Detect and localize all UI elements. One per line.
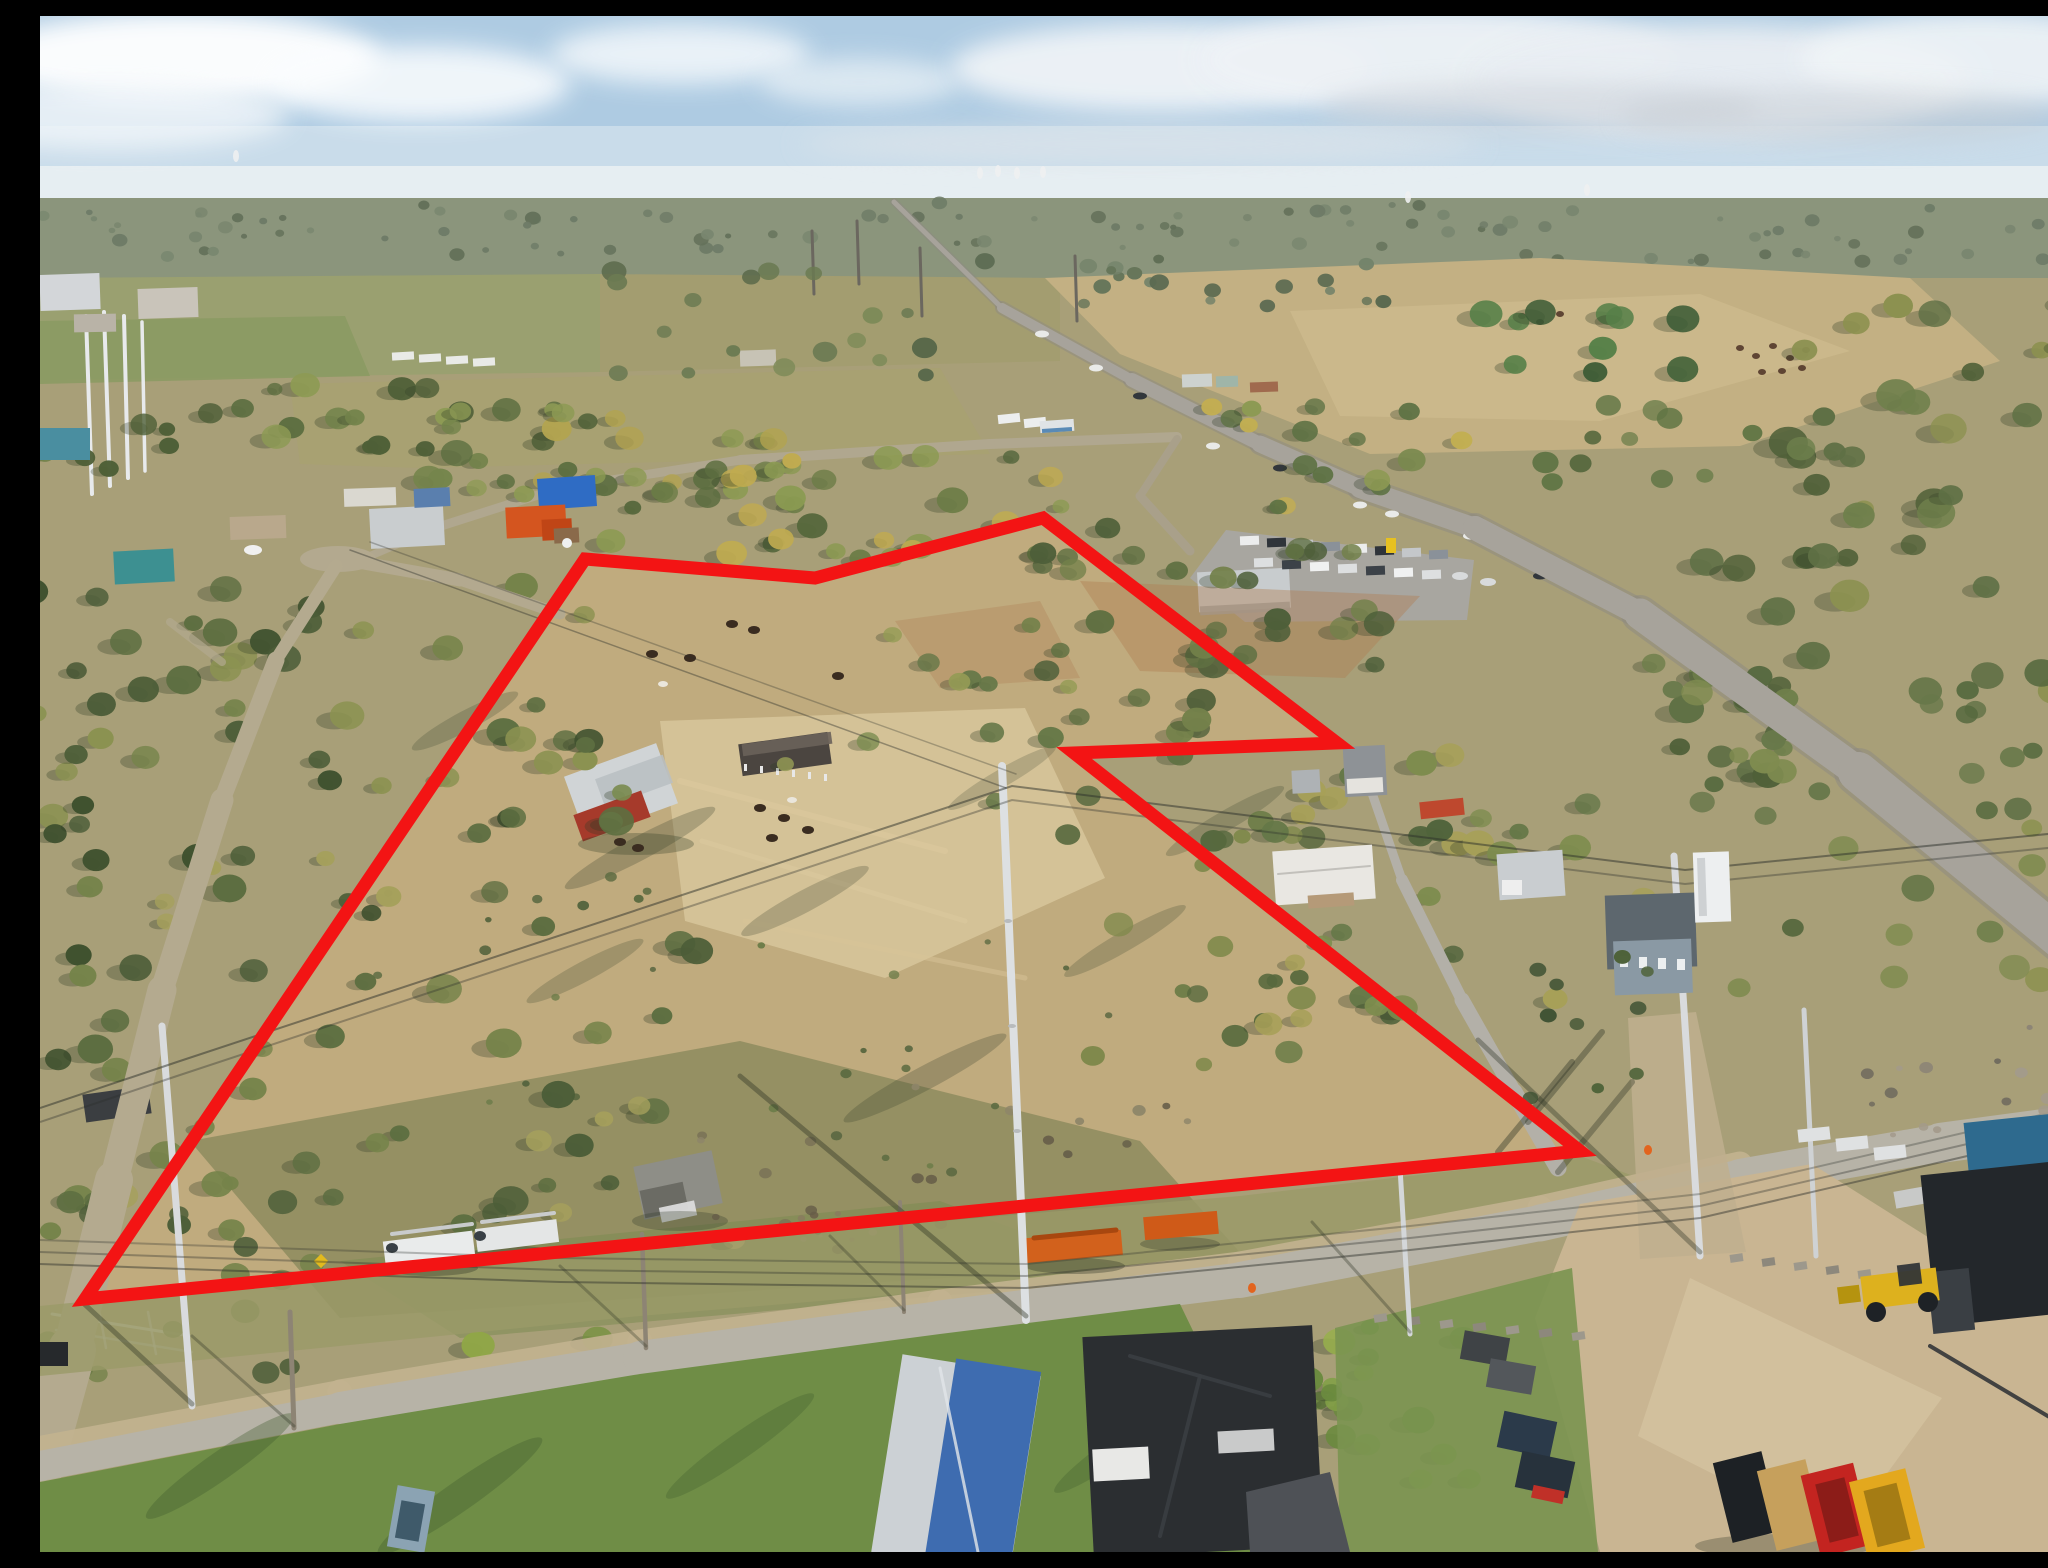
distant-forest bbox=[877, 214, 888, 223]
treeline-above-homes bbox=[442, 419, 461, 435]
pasture-tree-clump bbox=[1621, 432, 1638, 446]
distant-forest bbox=[218, 221, 233, 233]
bare-brush bbox=[697, 1137, 705, 1143]
livestock-dark bbox=[632, 844, 644, 852]
right-woods bbox=[1095, 518, 1120, 539]
hwy-left-trees bbox=[805, 267, 822, 281]
distant-forest bbox=[381, 235, 388, 241]
right-woods bbox=[1206, 622, 1227, 639]
treeline-above-homes bbox=[558, 462, 577, 478]
notch-trees bbox=[1187, 985, 1208, 1002]
highway-vehicles-light bbox=[1353, 502, 1367, 509]
left-woods bbox=[628, 1097, 650, 1115]
bare-brush bbox=[759, 1168, 772, 1178]
distant-forest bbox=[954, 241, 961, 246]
right-woods bbox=[1122, 546, 1145, 565]
left-woods bbox=[82, 849, 109, 871]
left-woods bbox=[599, 807, 634, 836]
pasture-tree-clump bbox=[1666, 305, 1699, 332]
distant-forest bbox=[232, 213, 243, 222]
hwy-band-trees bbox=[1204, 283, 1221, 297]
far-right-trees bbox=[1754, 807, 1776, 825]
treeline-above-homes bbox=[267, 383, 282, 396]
garage-door bbox=[1502, 880, 1522, 895]
hwy-left-trees bbox=[872, 354, 887, 366]
treeline-above-homes bbox=[198, 403, 223, 423]
treeline-above-homes bbox=[130, 414, 157, 436]
livestock-dark bbox=[832, 672, 844, 680]
property-top-treeline bbox=[912, 445, 939, 467]
tall-thin-trees bbox=[1630, 1001, 1647, 1015]
small-shed bbox=[1291, 769, 1320, 793]
horizon-structures bbox=[1014, 167, 1020, 179]
right-edge-woods bbox=[1843, 312, 1870, 334]
loader-wheels bbox=[1918, 1292, 1938, 1312]
left-woods bbox=[57, 1191, 85, 1214]
distant-forest bbox=[725, 233, 731, 238]
notch-trees bbox=[1196, 1058, 1212, 1071]
left-woods bbox=[66, 662, 87, 679]
property-top-treeline bbox=[874, 446, 903, 470]
right-woods bbox=[1342, 544, 1362, 560]
house-windows bbox=[1639, 957, 1647, 968]
left-woods bbox=[268, 1190, 297, 1214]
pasture-tree-clump bbox=[1696, 469, 1713, 483]
left-woods bbox=[218, 1219, 244, 1241]
far-right-trees bbox=[1886, 924, 1913, 946]
hwy-right-trees bbox=[1269, 500, 1287, 514]
right-edge-woods bbox=[2004, 798, 2031, 820]
low-brush bbox=[889, 970, 900, 979]
pasture-trees bbox=[949, 673, 971, 691]
left-woods bbox=[88, 728, 114, 749]
horizon-structures bbox=[995, 165, 1001, 177]
distant-forest bbox=[504, 210, 517, 221]
distant-forest bbox=[1346, 220, 1354, 227]
hwy-right-trees bbox=[1240, 418, 1258, 433]
hwy-left-trees bbox=[912, 337, 937, 358]
distant-forest bbox=[1908, 226, 1924, 239]
far-right-trees bbox=[1808, 782, 1830, 800]
right-edge-woods bbox=[2012, 403, 2042, 427]
white-car bbox=[244, 545, 262, 555]
treeline-above-homes bbox=[345, 409, 365, 425]
hwy-band-trees bbox=[1318, 274, 1334, 287]
left-woods bbox=[680, 938, 713, 965]
house-trim-white bbox=[1217, 1429, 1274, 1454]
tall-thin-trees bbox=[1614, 950, 1631, 964]
left-woods bbox=[184, 615, 203, 631]
farm-building bbox=[1216, 376, 1238, 388]
distant-forest bbox=[977, 235, 992, 247]
farm-building bbox=[1182, 373, 1212, 387]
left-woods bbox=[352, 621, 374, 639]
treeline-above-homes bbox=[413, 466, 444, 492]
right-homes-trees bbox=[1509, 824, 1528, 840]
low-brush bbox=[532, 895, 542, 903]
distant-cattle bbox=[1752, 353, 1760, 359]
livestock-dark bbox=[766, 834, 778, 842]
distant-forest bbox=[114, 222, 121, 228]
distant-forest bbox=[1031, 216, 1038, 221]
right-edge-woods bbox=[1976, 801, 1998, 819]
property-top-treeline bbox=[738, 503, 766, 526]
distant-forest bbox=[1801, 251, 1810, 259]
industrial-junk bbox=[1919, 1062, 1933, 1073]
notch-trees bbox=[1104, 912, 1133, 936]
cloud bbox=[760, 58, 960, 106]
property-top-treeline bbox=[874, 532, 894, 549]
right-edge-woods bbox=[1973, 576, 2000, 598]
west-side-road bbox=[990, 437, 1177, 444]
parked-trailers bbox=[392, 351, 414, 360]
distant-forest bbox=[1170, 227, 1183, 238]
distant-forest bbox=[1502, 216, 1518, 229]
right-edge-woods bbox=[1803, 474, 1830, 496]
bare-brush bbox=[1043, 1136, 1054, 1145]
distant-forest bbox=[275, 230, 284, 237]
right-edge-woods bbox=[1813, 407, 1836, 425]
hwy-band-trees bbox=[1359, 258, 1374, 271]
red-shed-distant bbox=[1250, 382, 1278, 393]
hwy-band-trees bbox=[1275, 279, 1293, 293]
house-windows bbox=[1677, 959, 1685, 970]
far-right-trees bbox=[1880, 966, 1908, 989]
hwy-band-trees bbox=[1149, 274, 1168, 290]
hw-utility-pole bbox=[1075, 256, 1077, 321]
aerial-photo: Aerial drone photograph of rural acreage… bbox=[40, 16, 2048, 1552]
pasture-tree-clump bbox=[1570, 454, 1592, 472]
commercial-building bbox=[40, 273, 101, 311]
treeline-above-homes bbox=[466, 480, 486, 497]
left-woods bbox=[371, 777, 391, 794]
left-woods bbox=[101, 1009, 129, 1032]
property-top-treeline bbox=[797, 513, 828, 538]
right-edge-woods bbox=[1837, 549, 1859, 567]
low-brush bbox=[551, 994, 559, 1001]
treeline-above-homes bbox=[497, 474, 515, 489]
hwy-right-trees bbox=[1399, 403, 1420, 420]
left-woods bbox=[390, 1125, 410, 1141]
low-brush bbox=[946, 1167, 957, 1176]
distant-forest bbox=[1441, 226, 1455, 237]
hwy-left-trees bbox=[684, 293, 701, 307]
bare-brush bbox=[1184, 1118, 1191, 1124]
hw-utility-pole bbox=[812, 231, 814, 294]
left-woods bbox=[576, 737, 595, 753]
right-homes-trees bbox=[1417, 887, 1440, 906]
distant-forest bbox=[259, 218, 267, 225]
right-homes-trees bbox=[1470, 809, 1492, 827]
property-top-treeline bbox=[624, 501, 641, 515]
hwy-right-trees bbox=[1349, 432, 1366, 446]
left-woods bbox=[222, 1176, 239, 1190]
traffic-cones bbox=[1248, 1283, 1256, 1293]
hwy-left-trees bbox=[863, 307, 883, 324]
right-edge-woods bbox=[1876, 379, 1916, 411]
treeline-above-homes bbox=[231, 399, 254, 418]
distant-forest bbox=[701, 229, 714, 240]
treeline-above-homes bbox=[362, 440, 378, 453]
bare-brush bbox=[805, 1206, 817, 1216]
tall-thin-trees bbox=[1529, 963, 1546, 977]
treeline-above-homes bbox=[159, 423, 175, 436]
hw-utility-pole bbox=[920, 248, 922, 316]
entry-cars bbox=[1480, 578, 1496, 586]
distant-forest bbox=[570, 216, 578, 222]
car-row bbox=[1429, 550, 1448, 560]
right-woods bbox=[1060, 559, 1087, 581]
pasture-trees bbox=[979, 676, 998, 691]
distant-forest bbox=[531, 243, 539, 250]
distant-forest bbox=[91, 216, 97, 221]
hwy-left-trees bbox=[607, 274, 627, 290]
loader-cab bbox=[1897, 1263, 1922, 1287]
hwy-left-trees bbox=[758, 263, 779, 280]
left-woods bbox=[252, 1361, 279, 1383]
low-brush bbox=[522, 1081, 530, 1087]
far-right-trees bbox=[1782, 919, 1804, 937]
left-woods bbox=[128, 677, 159, 703]
yellow-sign bbox=[1386, 538, 1396, 553]
distant-forest bbox=[1566, 205, 1579, 216]
right-homes-trees bbox=[1435, 743, 1464, 767]
pole-flanges bbox=[1008, 1024, 1016, 1028]
distant-forest bbox=[1413, 200, 1426, 211]
pasture-tree-clump bbox=[1606, 306, 1634, 329]
distant-forest bbox=[1173, 212, 1182, 220]
left-woods bbox=[526, 1130, 552, 1151]
distant-forest bbox=[1406, 219, 1418, 229]
right-edge-woods bbox=[1796, 642, 1830, 670]
right-homes-trees bbox=[1255, 1012, 1283, 1035]
left-woods bbox=[534, 751, 563, 775]
right-woods bbox=[1034, 660, 1059, 681]
far-right-trees bbox=[1920, 694, 1944, 713]
low-brush bbox=[831, 1131, 842, 1140]
notch-trees bbox=[1290, 970, 1309, 985]
low-brush bbox=[634, 895, 644, 903]
hwy-band-trees bbox=[1362, 297, 1372, 306]
hwy-left-trees bbox=[682, 367, 696, 378]
parked-trailers bbox=[446, 355, 468, 364]
shed-posts bbox=[824, 774, 827, 781]
car-row bbox=[1394, 568, 1413, 578]
distant-forest bbox=[1905, 248, 1912, 254]
right-woods bbox=[1128, 689, 1151, 707]
right-edge-woods bbox=[1977, 921, 2004, 943]
distant-forest bbox=[2032, 219, 2045, 230]
low-brush bbox=[1063, 966, 1069, 971]
shack-shadow bbox=[632, 1211, 728, 1231]
left-woods bbox=[239, 1078, 267, 1101]
right-woods bbox=[1166, 561, 1188, 579]
right-edge-woods bbox=[1930, 414, 1967, 444]
property-top-treeline bbox=[716, 541, 747, 566]
pasture-trees bbox=[612, 784, 632, 800]
right-woods bbox=[1210, 567, 1237, 589]
blue-roof-house bbox=[537, 475, 597, 510]
low-brush bbox=[479, 945, 491, 955]
right-woods bbox=[1365, 657, 1384, 673]
distant-forest bbox=[1759, 249, 1771, 259]
far-right-trees bbox=[2000, 747, 2025, 767]
left-woods bbox=[362, 905, 382, 921]
property-top-treeline bbox=[812, 470, 837, 490]
far-right-trees bbox=[1663, 681, 1684, 698]
left-woods bbox=[505, 726, 536, 751]
far-right-trees bbox=[2018, 854, 2045, 876]
industrial-junk bbox=[1896, 1065, 1903, 1071]
horizon-structures bbox=[1040, 166, 1046, 178]
tall-thin-trees bbox=[1540, 1009, 1557, 1023]
distant-forest bbox=[1644, 253, 1658, 264]
right-edge-woods bbox=[1938, 485, 1963, 505]
hwy-left-trees bbox=[813, 342, 838, 362]
distant-forest bbox=[1848, 239, 1860, 249]
industrial-junk bbox=[2027, 1025, 2033, 1030]
left-woods bbox=[69, 816, 90, 833]
far-right-trees bbox=[1959, 763, 1985, 784]
pasture-trees bbox=[883, 627, 902, 642]
hwy-band-trees bbox=[1375, 295, 1391, 308]
right-woods bbox=[1237, 572, 1259, 590]
tan-roof-house bbox=[230, 515, 287, 540]
far-right-trees bbox=[1681, 680, 1713, 706]
loader-wheels bbox=[1866, 1302, 1886, 1322]
pasture-trees bbox=[917, 653, 939, 671]
tall-thin-trees bbox=[1641, 966, 1654, 976]
left-woods bbox=[293, 1151, 321, 1174]
hw-utility-pole bbox=[857, 221, 859, 284]
hwy-band-trees bbox=[1153, 255, 1164, 264]
highway-vehicles-light bbox=[1035, 331, 1049, 338]
right-woods bbox=[1022, 618, 1041, 633]
left-woods bbox=[69, 965, 96, 987]
left-woods bbox=[432, 635, 463, 660]
far-right-trees bbox=[1729, 747, 1748, 763]
distant-forest bbox=[449, 248, 464, 260]
right-woods bbox=[1086, 610, 1115, 634]
low-brush bbox=[905, 1045, 913, 1052]
left-woods bbox=[486, 1028, 522, 1057]
car-row bbox=[1267, 538, 1286, 548]
bare-brush bbox=[1132, 1105, 1145, 1116]
distant-forest bbox=[604, 245, 616, 255]
pasture-tree-clump bbox=[1504, 355, 1527, 374]
low-brush bbox=[486, 1099, 493, 1104]
tall-thin-trees bbox=[1629, 1068, 1644, 1080]
right-woods bbox=[1364, 611, 1395, 636]
property-top-treeline bbox=[596, 529, 625, 553]
right-edge-woods bbox=[2023, 743, 2043, 759]
distant-forest bbox=[161, 251, 174, 262]
left-woods bbox=[595, 1111, 614, 1126]
left-woods bbox=[77, 876, 103, 897]
right-edge-woods bbox=[1843, 502, 1875, 528]
left-woods bbox=[308, 751, 330, 769]
industrial-junk bbox=[1885, 1087, 1898, 1098]
treeline-above-homes bbox=[441, 440, 473, 466]
distant-forest bbox=[1284, 207, 1294, 215]
tall-thin-trees bbox=[1549, 979, 1564, 991]
distant-forest bbox=[1160, 222, 1170, 230]
treeline-above-homes bbox=[623, 468, 646, 487]
commercial-building bbox=[74, 314, 116, 333]
low-brush bbox=[840, 1069, 851, 1078]
right-edge-woods bbox=[1642, 654, 1666, 673]
property-top-treeline bbox=[651, 483, 673, 501]
blue-roof-section bbox=[414, 487, 451, 508]
left-woods bbox=[66, 944, 92, 965]
livestock-dark bbox=[726, 620, 738, 628]
loader-bucket bbox=[1837, 1285, 1861, 1305]
distant-cattle bbox=[1758, 369, 1766, 375]
livestock-dark bbox=[778, 814, 790, 822]
car-row bbox=[1402, 548, 1421, 558]
left-woods bbox=[240, 959, 268, 982]
distant-forest bbox=[802, 231, 818, 244]
far-right-trees bbox=[1728, 978, 1751, 997]
pole-flanges bbox=[1004, 919, 1012, 923]
right-woods bbox=[1182, 708, 1211, 732]
distant-forest bbox=[1773, 226, 1785, 235]
distant-forest bbox=[1292, 237, 1307, 249]
white-trailer-home bbox=[344, 487, 397, 507]
treeline-above-homes bbox=[159, 438, 179, 454]
pasture-tree-clump bbox=[1542, 473, 1563, 490]
treeline-above-homes bbox=[290, 373, 320, 397]
distant-forest bbox=[557, 251, 564, 257]
left-woods bbox=[40, 1222, 61, 1239]
right-homes-trees bbox=[1320, 787, 1348, 810]
left-woods bbox=[155, 894, 175, 910]
parked-trailers bbox=[473, 357, 495, 366]
parked-trailers bbox=[419, 353, 441, 362]
distant-forest bbox=[1480, 221, 1489, 228]
distant-forest bbox=[1763, 230, 1771, 236]
right-edge-woods bbox=[1824, 443, 1846, 461]
left-woods bbox=[316, 851, 334, 866]
left-woods bbox=[203, 618, 237, 646]
distant-forest bbox=[109, 228, 116, 233]
distant-forest bbox=[1961, 249, 1974, 259]
pasture-trees bbox=[1060, 680, 1077, 694]
distant-forest bbox=[1120, 245, 1126, 250]
notch-trees bbox=[1275, 1041, 1302, 1063]
tall-thin-trees bbox=[1592, 1083, 1604, 1093]
distant-cattle bbox=[1798, 365, 1806, 371]
distant-forest bbox=[1805, 214, 1820, 226]
left-woods bbox=[601, 1175, 620, 1190]
distant-blue-building bbox=[40, 428, 90, 460]
junk-pile bbox=[835, 1211, 841, 1216]
tall-thin-trees bbox=[1570, 1018, 1585, 1030]
hwy-right-trees bbox=[1364, 470, 1390, 491]
distant-cattle bbox=[1769, 343, 1777, 349]
bare-brush bbox=[1075, 1118, 1084, 1125]
right-homes-trees bbox=[1543, 989, 1568, 1009]
hwy-band-trees bbox=[1260, 300, 1275, 313]
left-woods bbox=[318, 770, 342, 790]
distant-forest bbox=[1376, 242, 1387, 251]
right-woods bbox=[1051, 643, 1070, 658]
distant-forest bbox=[1694, 254, 1709, 266]
low-brush bbox=[485, 917, 492, 922]
hwy-right-trees bbox=[1242, 401, 1262, 417]
distant-forest bbox=[861, 209, 876, 221]
notch-trees bbox=[1267, 974, 1283, 987]
